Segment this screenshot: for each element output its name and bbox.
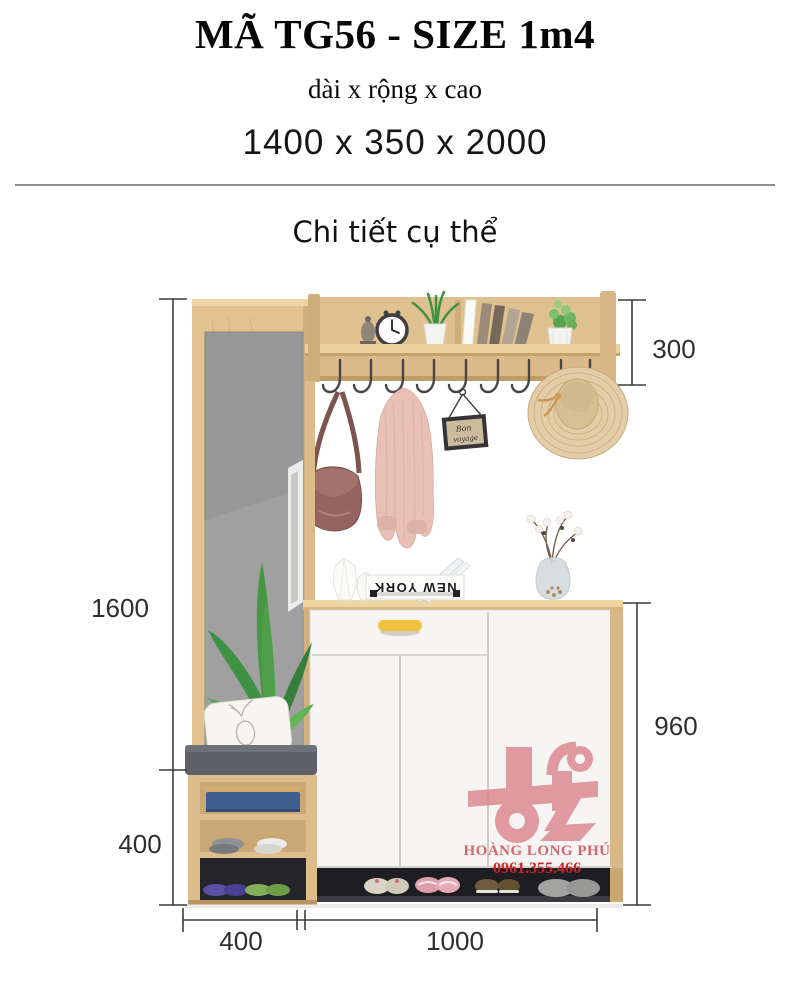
dim-bench-height: 400 <box>108 829 172 860</box>
floor-shadow <box>185 904 622 908</box>
product-spec-page: MÃ TG56 - SIZE 1m4 dài x rộng x cao 1400… <box>0 0 790 1000</box>
page-title: MÃ TG56 - SIZE 1m4 <box>0 10 790 58</box>
section-title: Chi tiết cụ thể <box>0 215 790 249</box>
flower-vase <box>527 511 582 599</box>
divider-line <box>15 184 775 186</box>
storage-box <box>200 786 304 812</box>
sign-text-line1: Bon <box>454 423 472 433</box>
bench-cushion <box>185 745 317 775</box>
dim-column-height: 1600 <box>86 593 154 624</box>
cardigan <box>375 388 433 548</box>
drawer-handle <box>378 620 422 636</box>
dim-bench-width: 400 <box>202 926 280 957</box>
watermark-brand-name: HOÀNG LONG PHÚ <box>458 843 616 860</box>
dim-cabinet-height: 960 <box>646 711 706 742</box>
dimension-caption: dài x rộng x cao <box>0 74 790 105</box>
dim-cabinet-width: 1000 <box>408 926 502 957</box>
watermark-phone: 0961.355.466 <box>472 860 602 878</box>
side-post <box>305 381 315 602</box>
bon-voyage-sign: Bon voyage <box>439 387 488 451</box>
dim-shelf-height: 300 <box>644 334 704 365</box>
dimension-values: 1400 x 350 x 2000 <box>0 123 790 163</box>
decor-book-title: NEW YORK <box>368 577 462 597</box>
straw-hat <box>528 367 628 459</box>
bench-shelf-unit <box>188 775 317 905</box>
